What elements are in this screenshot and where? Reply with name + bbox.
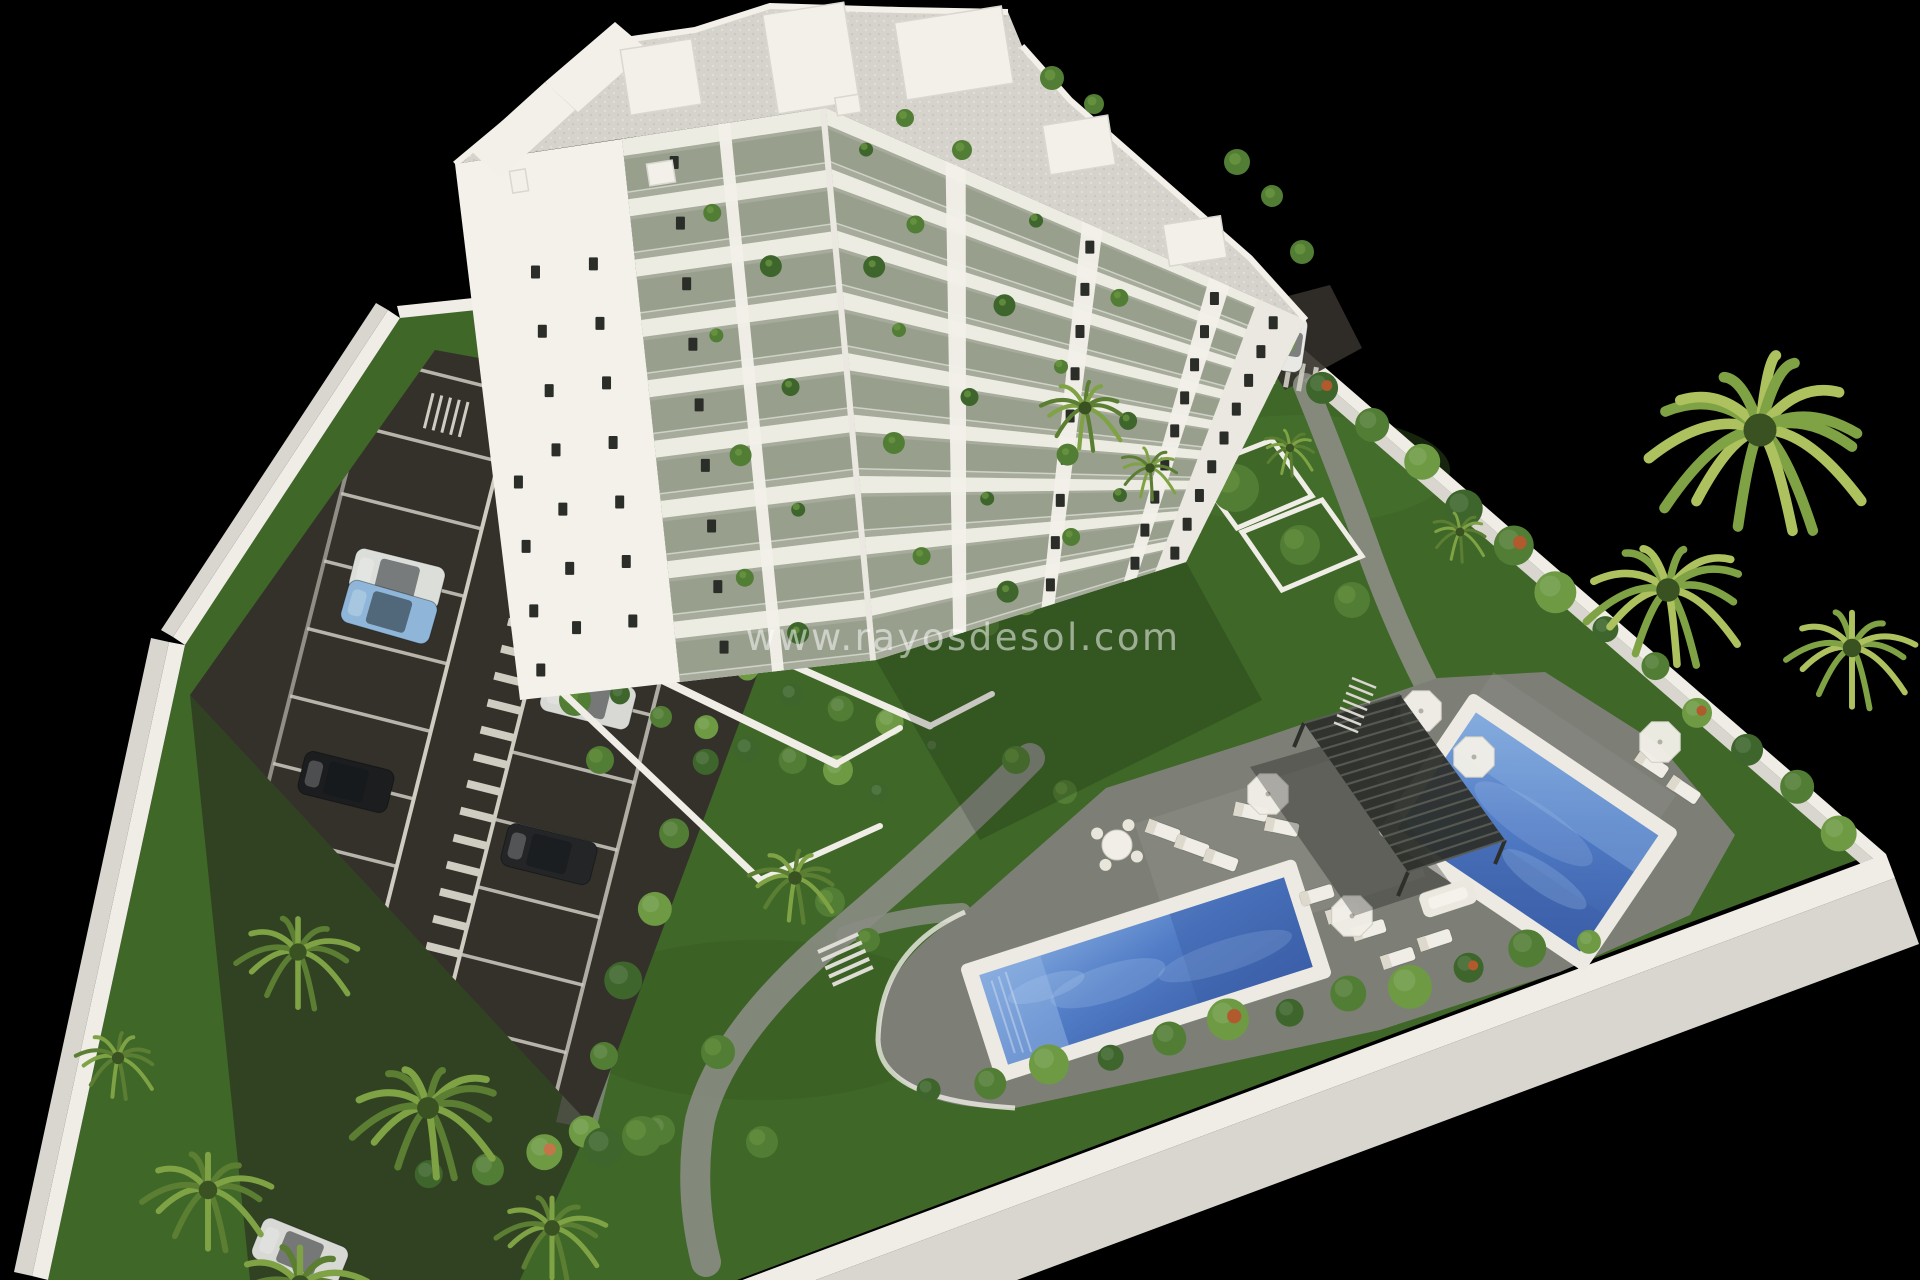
- small-window: [531, 266, 540, 279]
- balcony-plant: [760, 255, 782, 277]
- small-window: [682, 277, 691, 290]
- small-window: [695, 398, 704, 411]
- small-window: [707, 519, 716, 532]
- small-window: [1269, 316, 1278, 329]
- small-window: [1195, 489, 1204, 502]
- balcony-plant: [913, 547, 931, 565]
- small-window: [558, 503, 567, 516]
- small-window: [713, 580, 722, 593]
- small-window: [572, 621, 581, 634]
- small-window: [615, 495, 624, 508]
- balcony-plant: [730, 444, 752, 466]
- small-window: [1210, 292, 1219, 305]
- balcony-plant: [703, 204, 721, 222]
- palm-crown: [788, 871, 801, 884]
- small-window: [552, 443, 561, 456]
- roof-structure: [835, 94, 862, 116]
- small-window: [589, 257, 598, 270]
- small-window: [1046, 578, 1055, 591]
- small-window: [1200, 325, 1209, 338]
- watermark-text: www.rayosdesol.com: [745, 616, 1180, 659]
- small-window: [602, 376, 611, 389]
- small-window: [676, 217, 685, 230]
- palm-crown: [544, 1220, 560, 1236]
- small-window: [1130, 557, 1139, 570]
- balcony-plant: [993, 294, 1015, 316]
- palm-crown: [1743, 413, 1776, 446]
- small-window: [1075, 325, 1084, 338]
- small-window: [609, 436, 618, 449]
- small-window: [1051, 536, 1060, 549]
- flowering-shrub: [544, 1143, 556, 1155]
- balcony-plant: [782, 378, 800, 396]
- balcony-plant: [1062, 528, 1080, 546]
- small-window: [536, 663, 545, 676]
- palm-crown: [199, 1181, 217, 1199]
- palm-crown: [289, 943, 306, 960]
- roof-structure: [509, 169, 528, 193]
- small-window: [1056, 494, 1065, 507]
- balcony-plant: [961, 388, 979, 406]
- balcony-plant: [906, 215, 924, 233]
- small-window: [688, 338, 697, 351]
- small-window: [545, 384, 554, 397]
- site-render: www.rayosdesol.com: [0, 0, 1920, 1280]
- roof-structure: [646, 160, 675, 186]
- roof-structure: [895, 6, 1014, 100]
- small-window: [1207, 460, 1216, 473]
- small-window: [701, 459, 710, 472]
- balcony-plant: [1057, 444, 1079, 466]
- round-table: [1102, 830, 1132, 860]
- small-window: [522, 540, 531, 553]
- palm-crown: [1843, 639, 1861, 657]
- palm-crown: [112, 1052, 124, 1064]
- chair: [1100, 859, 1112, 871]
- small-window: [529, 604, 538, 617]
- chair: [1131, 851, 1143, 863]
- palm-crown: [1145, 463, 1155, 473]
- chair: [1123, 819, 1135, 831]
- small-window: [1140, 524, 1149, 537]
- balcony-plant: [736, 569, 754, 587]
- small-window: [538, 325, 547, 338]
- balcony-plant: [1110, 289, 1128, 307]
- palm-crown: [1079, 402, 1092, 415]
- flowering-shrub: [1513, 536, 1527, 550]
- palm-crown: [1286, 444, 1294, 452]
- small-window: [1220, 431, 1229, 444]
- balcony-plant: [863, 256, 885, 278]
- small-window: [1180, 391, 1189, 404]
- small-window: [1244, 374, 1253, 387]
- small-window: [622, 555, 631, 568]
- architectural-render-page: www.rayosdesol.com: [0, 0, 1920, 1280]
- small-window: [1190, 358, 1199, 371]
- balcony-plant: [883, 432, 905, 454]
- small-window: [514, 475, 523, 488]
- small-window: [565, 562, 574, 575]
- small-window: [1071, 367, 1080, 380]
- palm-crown: [1456, 528, 1465, 537]
- small-window: [1183, 518, 1192, 531]
- small-window: [1085, 241, 1094, 254]
- small-window: [595, 317, 604, 330]
- palm-crown: [417, 1097, 439, 1119]
- small-window: [1170, 547, 1179, 560]
- small-window: [1256, 345, 1265, 358]
- palm-crown: [1656, 578, 1680, 602]
- small-window: [1170, 424, 1179, 437]
- small-window: [1080, 283, 1089, 296]
- flowering-shrub: [1227, 1009, 1241, 1023]
- small-window: [628, 615, 637, 628]
- roof-structure: [1163, 216, 1227, 267]
- small-window: [1232, 403, 1241, 416]
- small-window: [720, 641, 729, 654]
- flowering-shrub: [1468, 960, 1478, 970]
- roof-structure: [620, 39, 701, 115]
- flowering-shrub: [1321, 380, 1332, 391]
- balcony-plant: [997, 581, 1019, 603]
- roof-structure: [1042, 115, 1115, 175]
- chair: [1091, 828, 1103, 840]
- flowering-shrub: [1696, 706, 1706, 716]
